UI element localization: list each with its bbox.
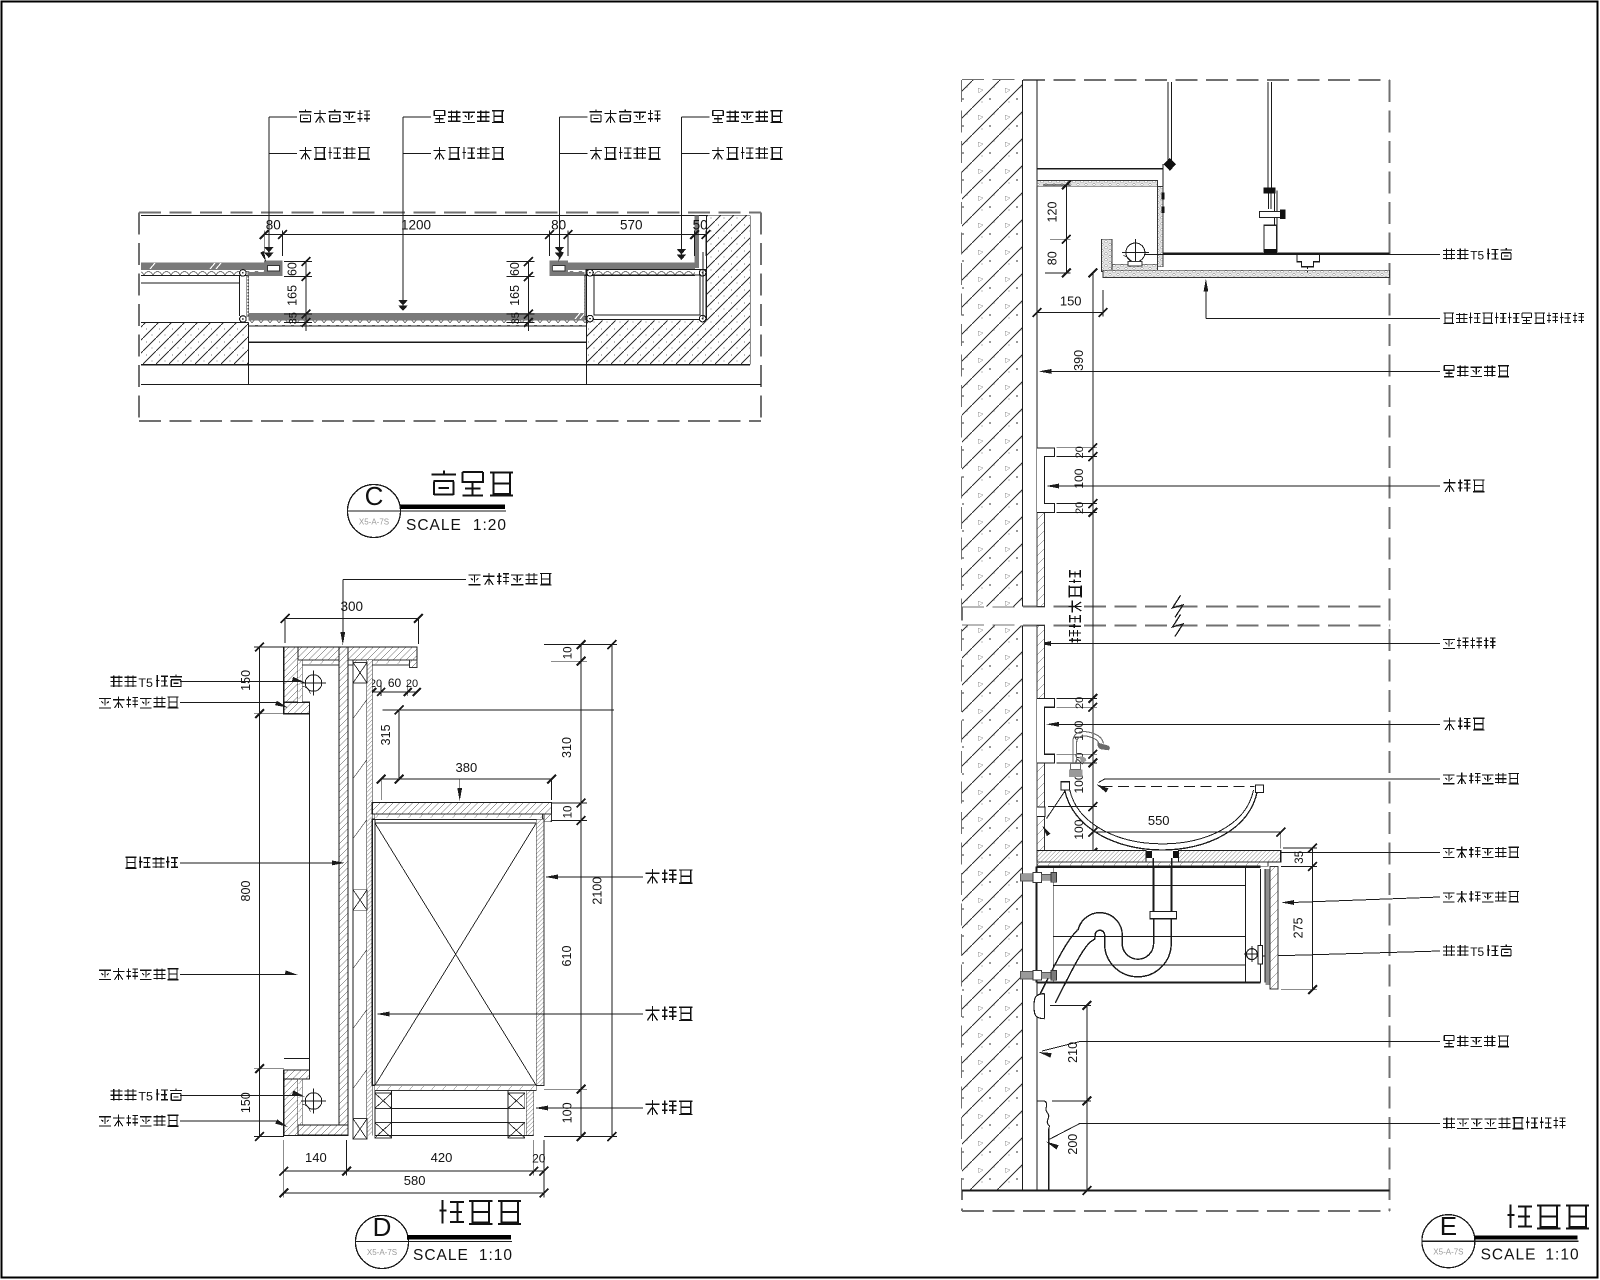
svg-text:20: 20 — [532, 1152, 546, 1166]
svg-text:120: 120 — [1046, 202, 1060, 223]
svg-text:80: 80 — [551, 218, 566, 233]
svg-text:390: 390 — [1072, 350, 1086, 371]
svg-text:1200: 1200 — [401, 218, 431, 233]
svg-text:570: 570 — [620, 218, 643, 233]
svg-text:100: 100 — [1072, 468, 1086, 488]
svg-text:60: 60 — [508, 262, 522, 276]
svg-text:10: 10 — [563, 806, 575, 819]
svg-text:50: 50 — [693, 218, 708, 233]
svg-text:165: 165 — [508, 285, 522, 306]
svg-text:T5: T5 — [1470, 249, 1484, 263]
svg-text:T5: T5 — [1470, 945, 1484, 959]
svg-text:1:10: 1:10 — [1545, 1247, 1579, 1264]
svg-text:D: D — [373, 1212, 392, 1242]
svg-text:60: 60 — [388, 676, 402, 690]
svg-text:20: 20 — [1074, 446, 1086, 458]
svg-text:100: 100 — [1072, 819, 1086, 839]
svg-text:100: 100 — [561, 1102, 575, 1123]
svg-text:1:10: 1:10 — [479, 1247, 513, 1264]
svg-text:35: 35 — [1294, 851, 1306, 864]
svg-text:SCALE: SCALE — [406, 517, 462, 534]
svg-text:2100: 2100 — [591, 877, 605, 905]
svg-text:35: 35 — [510, 312, 522, 324]
svg-text:20: 20 — [1074, 697, 1086, 709]
svg-text:20: 20 — [1074, 502, 1086, 514]
svg-text:80: 80 — [1046, 251, 1060, 265]
svg-text:380: 380 — [456, 760, 478, 775]
svg-text:310: 310 — [560, 737, 574, 758]
svg-text:165: 165 — [286, 285, 300, 306]
svg-text:T5: T5 — [138, 1090, 153, 1104]
svg-text:550: 550 — [1148, 813, 1170, 828]
svg-text:X5-A-7S: X5-A-7S — [367, 1248, 397, 1257]
svg-text:420: 420 — [431, 1150, 453, 1165]
svg-text:C: C — [365, 481, 384, 511]
svg-text:300: 300 — [341, 599, 364, 614]
svg-text:X5-A-7S: X5-A-7S — [1433, 1248, 1463, 1257]
svg-text:60: 60 — [286, 262, 300, 276]
svg-text:140: 140 — [305, 1150, 327, 1165]
svg-text:10: 10 — [563, 647, 575, 660]
svg-text:T5: T5 — [138, 676, 153, 690]
svg-text:35: 35 — [288, 312, 300, 324]
svg-text:210: 210 — [1066, 1042, 1080, 1063]
svg-text:315: 315 — [379, 724, 393, 745]
svg-text:610: 610 — [560, 946, 574, 967]
svg-text:E: E — [1440, 1211, 1457, 1241]
svg-text:SCALE: SCALE — [1481, 1247, 1537, 1264]
svg-text:580: 580 — [404, 1173, 426, 1188]
svg-text:200: 200 — [1066, 1134, 1080, 1155]
svg-text:800: 800 — [239, 881, 253, 902]
svg-text:80: 80 — [266, 218, 281, 233]
svg-text:150: 150 — [1060, 294, 1082, 309]
svg-text:150: 150 — [239, 670, 253, 691]
svg-text:SCALE: SCALE — [413, 1247, 469, 1264]
svg-text:275: 275 — [1292, 917, 1306, 938]
svg-text:1:20: 1:20 — [473, 517, 507, 534]
svg-text:X5-A-7S: X5-A-7S — [359, 518, 389, 527]
